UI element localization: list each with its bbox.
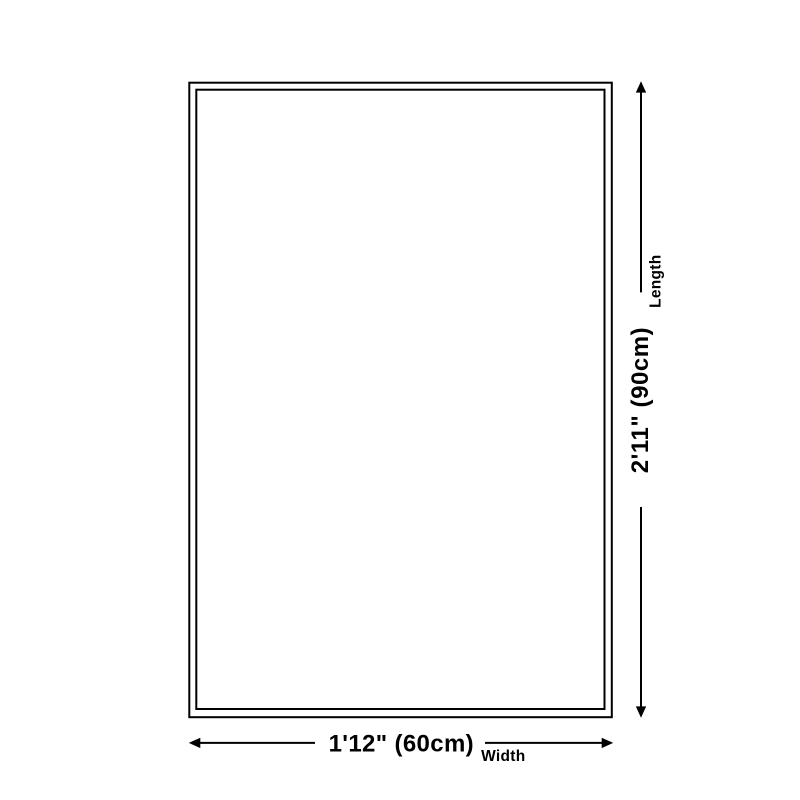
- svg-text:Width: Width: [481, 748, 525, 765]
- svg-text:1'12" (60cm): 1'12" (60cm): [329, 731, 474, 758]
- svg-text:2'11" (90cm): 2'11" (90cm): [627, 327, 654, 473]
- svg-text:Length: Length: [648, 254, 665, 307]
